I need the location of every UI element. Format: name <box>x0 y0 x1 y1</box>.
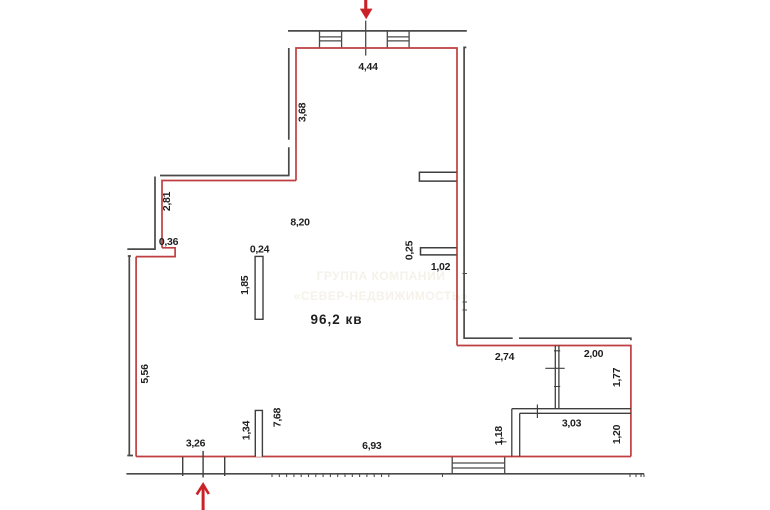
svg-text:8,20: 8,20 <box>290 217 310 229</box>
svg-text:1,18: 1,18 <box>493 426 505 446</box>
svg-text:2,74: 2,74 <box>495 351 515 363</box>
svg-text:3,68: 3,68 <box>297 102 309 122</box>
svg-text:6,93: 6,93 <box>362 440 382 452</box>
svg-text:5,56: 5,56 <box>139 364 151 384</box>
svg-text:2,81: 2,81 <box>161 191 173 211</box>
svg-text:4,44: 4,44 <box>358 61 378 73</box>
svg-text:7,68: 7,68 <box>272 408 284 428</box>
svg-text:0,24: 0,24 <box>250 244 270 256</box>
svg-text:1,34: 1,34 <box>240 421 252 441</box>
svg-text:3,26: 3,26 <box>186 438 206 450</box>
svg-text:2,00: 2,00 <box>584 348 604 360</box>
svg-text:ГРУППА КОМПАНИЙ: ГРУППА КОМПАНИЙ <box>317 268 446 283</box>
svg-text:0,36: 0,36 <box>159 236 179 248</box>
svg-text:1,77: 1,77 <box>611 367 623 387</box>
svg-text:3,03: 3,03 <box>562 418 582 430</box>
svg-text:1,85: 1,85 <box>239 275 251 295</box>
svg-text:0,25: 0,25 <box>404 240 416 260</box>
svg-text:96,2 кв: 96,2 кв <box>311 312 363 327</box>
svg-text:1,20: 1,20 <box>611 424 623 444</box>
svg-text:«СЕВЕР-НЕДВИЖИМОСТЬ»: «СЕВЕР-НЕДВИЖИМОСТЬ» <box>294 289 468 303</box>
svg-text:1,02: 1,02 <box>431 261 451 273</box>
